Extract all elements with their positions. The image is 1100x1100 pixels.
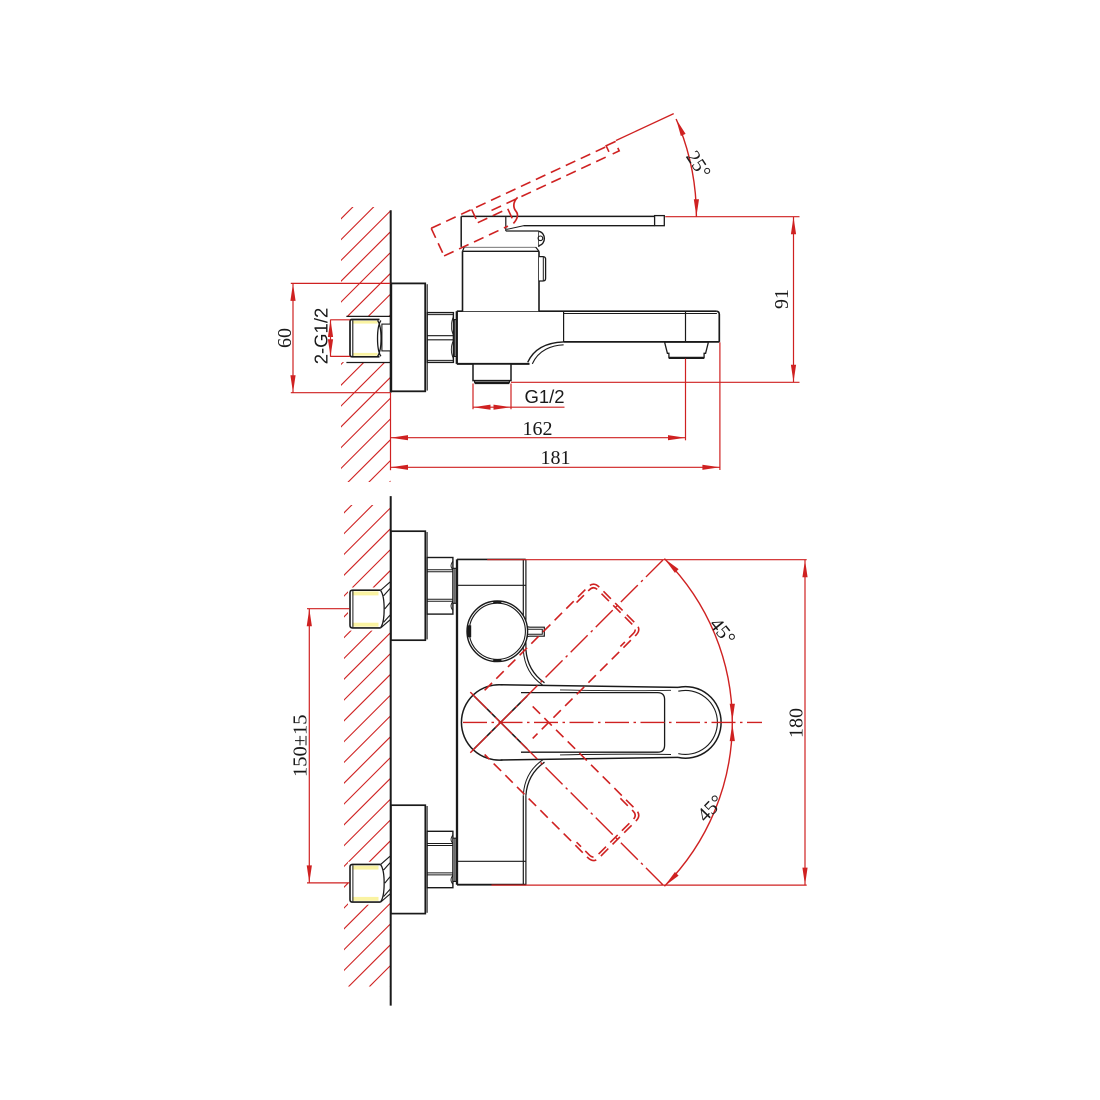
svg-text:91: 91 bbox=[771, 289, 793, 309]
svg-text:G1/2: G1/2 bbox=[524, 386, 564, 407]
svg-text:162: 162 bbox=[523, 418, 553, 440]
svg-text:60: 60 bbox=[274, 328, 296, 348]
svg-text:181: 181 bbox=[541, 447, 571, 469]
svg-text:150±15: 150±15 bbox=[290, 715, 312, 778]
svg-text:180: 180 bbox=[786, 708, 808, 738]
svg-text:2-G1/2: 2-G1/2 bbox=[311, 308, 332, 365]
